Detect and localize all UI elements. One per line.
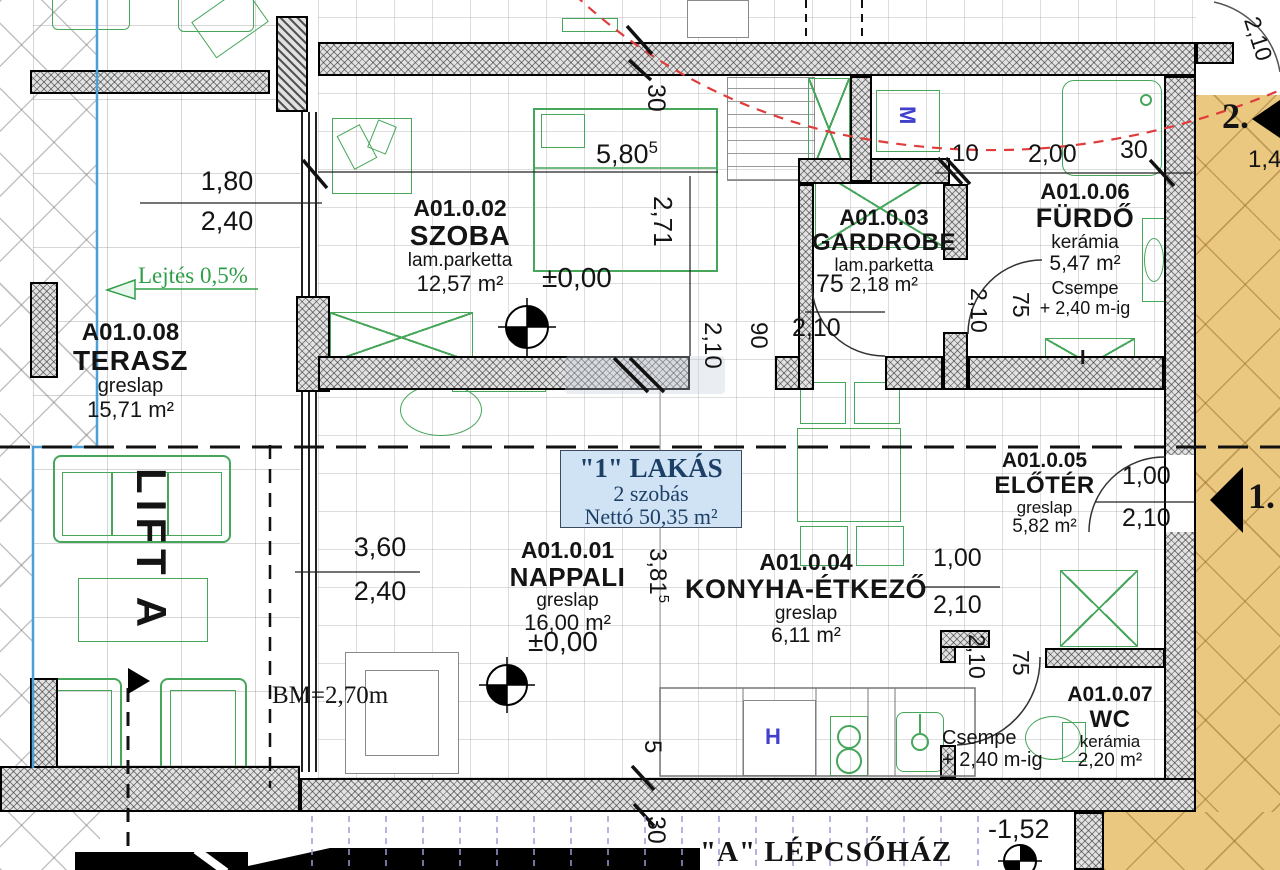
wall-gardrobe-top (798, 158, 950, 184)
room-code: A01.0.01 (495, 538, 640, 563)
dim-entrance-h: 2,10 (1122, 506, 1171, 531)
cabinet-label: I (1080, 348, 1086, 368)
dim-niche: 10 (952, 142, 979, 166)
terrace-armchair-seat-icon (170, 690, 236, 768)
room-finish: greslap (58, 376, 203, 398)
room-label-nappali: A01.0.01 NAPPALI greslap 16,00 m² (495, 538, 640, 635)
dim-wall-top: 30 (643, 84, 668, 112)
room-note: Csempe (942, 728, 1062, 750)
entry-1-label: 1. (1248, 478, 1275, 514)
room-code: A01.0.07 (1050, 684, 1170, 707)
room-area: 2,20 m² (1050, 751, 1170, 772)
room-area: 15,71 m² (58, 398, 203, 422)
room-finish: greslap (495, 591, 640, 612)
room-code: A01.0.03 (808, 206, 960, 230)
dim-nappali-depth: 3,815 (645, 548, 670, 603)
lift-label: LIFT A (130, 468, 172, 633)
dim-corridor: 1,4 (1248, 148, 1280, 172)
dim-wc-door-h: 2,10 (965, 634, 988, 679)
dim-kitchen-opening-h: 2,10 (933, 593, 982, 618)
room-note: + 2,40 m-ig (1018, 299, 1152, 318)
room-code: A01.0.04 (665, 550, 947, 575)
level-symbol (998, 845, 1042, 870)
dim-entrance: 1,00 (1122, 464, 1171, 489)
floor-plan: A01.0.02 SZOBA lam.parketta 12,57 m² A01… (0, 0, 1280, 870)
dim-bath-door-h: 2,10 (967, 288, 990, 333)
level-symbol (498, 298, 556, 356)
dim-bottom-wall-5: 5 (640, 740, 664, 753)
dim-sup: 5 (649, 138, 658, 157)
parapet-top-left (30, 70, 270, 94)
dim-bottom-wall-30: 30 (643, 816, 668, 844)
room-finish: kerámia (1018, 233, 1152, 254)
dim-bath-width: 2,00 (1028, 142, 1077, 167)
wall-mid (885, 356, 943, 390)
dim-bath-door: 75 (1009, 292, 1032, 318)
room-label-furdo: A01.0.06 FÜRDŐ kerámia 5,47 m² Csempe + … (1018, 180, 1152, 318)
dim-nappali-window-h: 2,40 (338, 578, 422, 605)
dim-sup: 5 (655, 595, 671, 603)
hall-cabinet-icon (1060, 570, 1138, 647)
pillow-icon (541, 114, 585, 148)
fridge-label: H (765, 726, 781, 748)
entry-2-label: 2. (1222, 98, 1249, 134)
apartment-summary-box: "1" LAKÁS 2 szobás Nettó 50,35 m² (560, 450, 742, 528)
dim-kitchen-opening: 1,00 (933, 546, 982, 571)
room-finish: lam.parketta (385, 251, 535, 272)
room-label-wc: A01.0.07 WC kerámia 2,20 m² (1050, 684, 1170, 771)
upstairs-furniture-green (562, 18, 618, 32)
wall-bottom (300, 778, 1196, 812)
wall-left-edge (30, 282, 58, 378)
dim-value: 3,81 (644, 548, 671, 595)
room-code: A01.0.02 (385, 196, 535, 221)
apartment-type: 2 szobás (561, 482, 741, 505)
dining-table-icon (797, 428, 901, 522)
room-label-terasz: A01.0.08 TERASZ greslap 15,71 m² (58, 320, 203, 421)
room-code: A01.0.05 (982, 450, 1107, 473)
dim-wc-door: 75 (1009, 650, 1032, 676)
wall-stair-strip (1074, 812, 1104, 870)
room-code: A01.0.06 (1018, 180, 1152, 204)
dim-room-width: 5,805 (596, 140, 658, 168)
dim-value: 2,71 (648, 196, 678, 247)
room-label-eloter: A01.0.05 ELŐTÉR greslap 5,82 m² (982, 450, 1107, 537)
level-symbol (479, 657, 535, 713)
wall-top (318, 42, 1196, 76)
room-name: TERASZ (58, 346, 203, 376)
dim-room-depth: 2,71 (650, 196, 676, 247)
room-note: Csempe (1018, 279, 1152, 298)
room-finish: greslap (665, 604, 947, 625)
room-code: A01.0.08 (58, 320, 203, 346)
stair-level-label: -1,52 (988, 816, 1050, 843)
dim-building-door: 2,10 (1240, 14, 1276, 64)
wall-niche (850, 76, 872, 182)
stair-mass (75, 848, 700, 870)
wc-tiling-note: Csempe + 2,40 m-ig (942, 728, 1062, 771)
wall-terrace-south (0, 766, 300, 812)
window (301, 112, 317, 296)
dim-door-szoba-h: 2,10 (700, 322, 724, 369)
dim-wall: 30 (1120, 138, 1148, 163)
column (276, 16, 308, 112)
beam-height-label: BM=2,70m (272, 683, 388, 708)
room-label-szoba: A01.0.02 SZOBA lam.parketta 12,57 m² (385, 196, 535, 295)
slope-label: Lejtés 0,5% (138, 264, 248, 287)
level-label-szoba: ±0,00 (542, 264, 612, 292)
room-name: KONYHA-ÉTKEZŐ (665, 575, 947, 604)
cooktop-icon (830, 716, 868, 776)
room-finish: greslap (982, 499, 1107, 517)
dim-nappali-window: 3,60 (338, 534, 422, 561)
level-label-nappali: ±0,00 (528, 628, 598, 656)
room-area: 5,82 m² (982, 517, 1107, 538)
room-area: 5,47 m² (1018, 253, 1152, 276)
room-name: WC (1050, 707, 1170, 733)
dim-door: 75 (816, 272, 844, 297)
room-name: FÜRDŐ (1018, 204, 1152, 233)
sink-icon (896, 712, 944, 772)
window (301, 392, 317, 772)
outdoor-chair-icon (52, 0, 130, 30)
wall-left-edge (30, 678, 58, 776)
apartment-net-area: Nettó 50,35 m² (561, 505, 741, 528)
washer-label: M (896, 106, 918, 124)
staircase-label: "A" LÉPCSŐHÁZ (700, 838, 952, 867)
dim-window-width: 1,80 (185, 168, 269, 195)
room-name: SZOBA (385, 221, 535, 251)
room-area: 6,11 m² (665, 625, 947, 648)
dim-value: 5,80 (596, 139, 649, 169)
room-name: NAPPALI (495, 563, 640, 591)
dim-window-height: 2,40 (185, 208, 269, 235)
wall-stub-top-right (1196, 42, 1234, 64)
apartment-title: "1" LAKÁS (561, 455, 741, 482)
wall-wc-top (1045, 648, 1165, 668)
wall-eloter-top (968, 356, 1164, 390)
room-note: + 2,40 m-ig (942, 750, 1062, 772)
room-label-konyha: A01.0.04 KONYHA-ÉTKEZŐ greslap 6,11 m² (665, 550, 947, 647)
room-name: GARDROBE (808, 230, 960, 256)
upstairs-furniture (687, 0, 749, 38)
room-area: 12,57 m² (385, 272, 535, 296)
room-finish: kerámia (1050, 733, 1170, 751)
wall-furdo-west (943, 332, 968, 390)
dim-door-szoba: 90 (746, 322, 770, 349)
dim-door-height: 2,10 (792, 316, 841, 341)
room-name: ELŐTÉR (982, 473, 1107, 499)
corridor-bottom-right (1104, 812, 1280, 870)
